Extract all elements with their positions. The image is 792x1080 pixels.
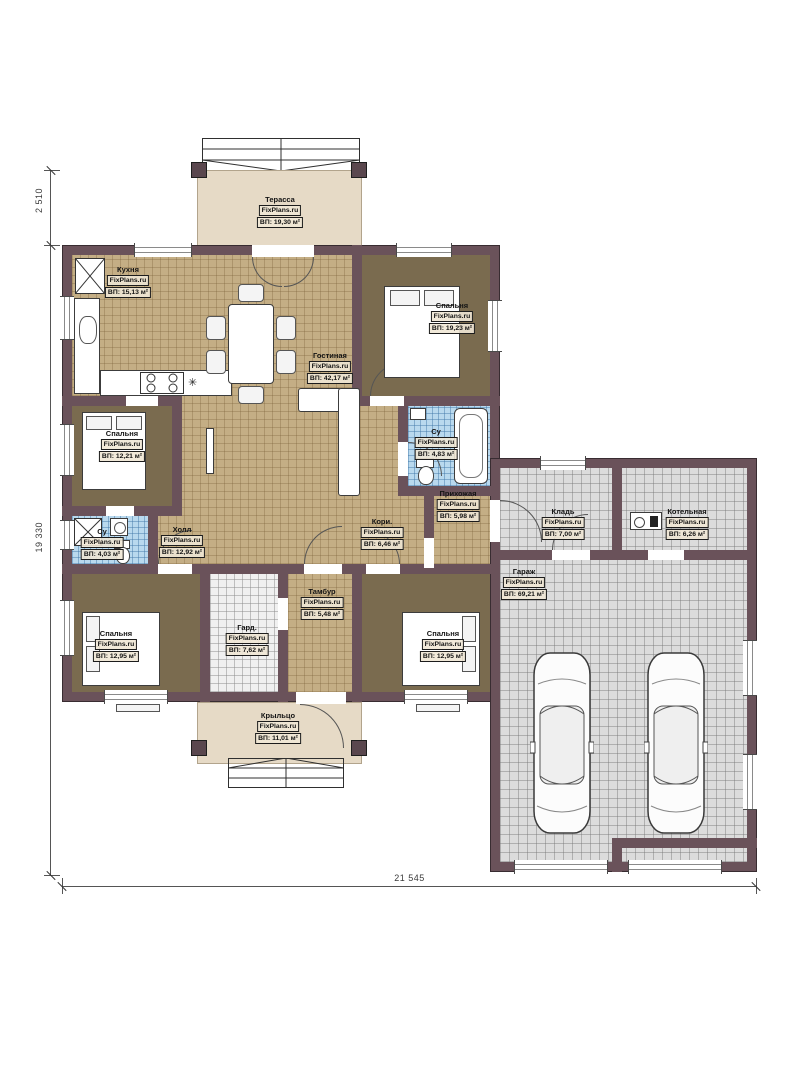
dimension-line-bottom [62,886,757,887]
watermark: FixPlans.ru [81,537,124,548]
wall-segment [62,396,182,406]
watermark: FixPlans.ru [226,633,269,644]
room-label-terrace: Терасса FixPlans.ru ВП: 19,30 м² [257,196,303,228]
door-opening [398,442,408,476]
bathtub-icon [454,408,488,484]
washbasin-icon [410,408,426,420]
watermark: FixPlans.ru [301,597,344,608]
wall-segment [352,245,362,406]
room-label-storage: Кладь FixPlans.ru ВП: 7,00 м² [542,508,585,540]
room-label-porch: Крыльцо FixPlans.ru ВП: 11,01 м² [255,712,301,744]
room-label-bathroom-left: Су FixPlans.ru ВП: 4,03 м² [81,528,124,560]
window [743,754,757,810]
window [488,300,502,352]
watermark: FixPlans.ru [431,311,474,322]
window [404,690,468,704]
chair [238,386,264,404]
kitchen-counter [74,298,100,394]
room-label-bathroom-center: Су FixPlans.ru ВП: 4,83 м² [415,428,458,460]
cooktop-star-icon: ✳ [188,376,197,389]
door-opening [304,564,342,574]
door-opening [370,396,404,406]
terrace-post [191,162,207,178]
room-label-bedroom-bottom-right: Спальня FixPlans.ru ВП: 12,95 м² [420,630,466,662]
car-icon [530,650,594,836]
watermark: FixPlans.ru [161,535,204,546]
toilet-icon [418,466,434,485]
porch-post [191,740,207,756]
wall-segment [612,838,622,872]
room-label-bedroom-top-right: Спальня FixPlans.ru ВП: 19,23 м² [429,302,475,334]
watermark: FixPlans.ru [259,205,302,216]
stove-icon [140,372,184,394]
floor-plan: ✳ [0,0,792,1080]
fridge-icon [75,258,105,294]
sofa [298,388,342,412]
room-label-corridor: Кори. FixPlans.ru ВП: 6,46 м² [361,518,404,550]
watermark: FixPlans.ru [101,439,144,450]
window [396,243,452,257]
door-opening [648,550,684,560]
watermark: FixPlans.ru [415,437,458,448]
room-label-living-room: Гостиная FixPlans.ru ВП: 42,17 м² [307,352,353,384]
pillow [390,290,420,306]
chair [206,350,226,374]
watermark: FixPlans.ru [257,721,300,732]
dining-table [228,304,274,384]
dimension-line-left [50,245,51,875]
pillow [116,416,142,430]
window [104,690,168,704]
pillow [86,416,112,430]
wall-segment [278,564,288,702]
room-label-garage: Гараж FixPlans.ru ВП: 69,21 м² [501,568,547,600]
garage-door [514,860,608,874]
dimension-label-terrace: 2 510 [34,188,44,213]
room-label-hall: Холл FixPlans.ru ВП: 12,92 м² [159,526,205,558]
wall-segment [172,396,182,516]
door-opening [296,692,346,704]
chair [206,316,226,340]
room-label-entry-hall: Прихожая FixPlans.ru ВП: 5,98 м² [437,490,480,522]
dimension-label-left: 19 330 [34,522,44,553]
wall-segment [500,550,747,560]
room-label-bedroom-bottom-left: Спальня FixPlans.ru ВП: 12,95 м² [93,630,139,662]
tv-stand [206,428,214,474]
room-label-boiler-room: Котельная FixPlans.ru ВП: 6,26 м² [666,508,709,540]
window [743,640,757,696]
window [60,296,74,340]
window [60,600,74,656]
porch-post [351,740,367,756]
car-icon [644,650,708,836]
watermark: FixPlans.ru [422,639,465,650]
door-opening [158,564,192,574]
chair [238,284,264,302]
door-opening [106,506,134,516]
watermark: FixPlans.ru [542,517,585,528]
wall-segment [200,564,210,702]
room-label-kitchen: Кухня FixPlans.ru ВП: 15,13 м² [105,266,151,298]
door-opening [252,245,314,257]
room-label-wardrobe: Гард. FixPlans.ru ВП: 7,62 м² [226,624,269,656]
watermark: FixPlans.ru [503,577,546,588]
door-opening [126,396,158,406]
dimension-line-terrace [50,170,51,245]
terrace-post [351,162,367,178]
sink-icon [79,316,97,344]
room-label-bedroom-left: Спальня FixPlans.ru ВП: 12,21 м² [99,430,145,462]
watermark: FixPlans.ru [361,527,404,538]
dimension-label-bottom: 21 545 [62,873,757,883]
watermark: FixPlans.ru [437,499,480,510]
wall-segment [612,838,757,848]
garage-door [628,860,722,874]
chair [276,316,296,340]
room-label-vestibule: Тамбур FixPlans.ru ВП: 5,48 м² [301,588,344,620]
chair [276,350,296,374]
window [60,520,74,550]
watermark: FixPlans.ru [666,517,709,528]
door-opening [552,550,590,560]
window [540,456,586,470]
sofa [338,388,360,496]
door-opening [278,598,288,630]
door-opening [490,500,500,542]
wall-segment [612,468,622,560]
wall-segment [352,564,362,702]
watermark: FixPlans.ru [309,361,352,372]
watermark: FixPlans.ru [107,275,150,286]
boiler-icon [630,512,662,530]
porch-roof-beams [228,758,344,788]
door-opening [366,564,400,574]
door-opening [424,538,434,568]
window-sill [116,704,160,712]
window [60,424,74,476]
window [134,243,192,257]
terrace-roof-beams [202,138,360,172]
window-sill [416,704,460,712]
watermark: FixPlans.ru [95,639,138,650]
